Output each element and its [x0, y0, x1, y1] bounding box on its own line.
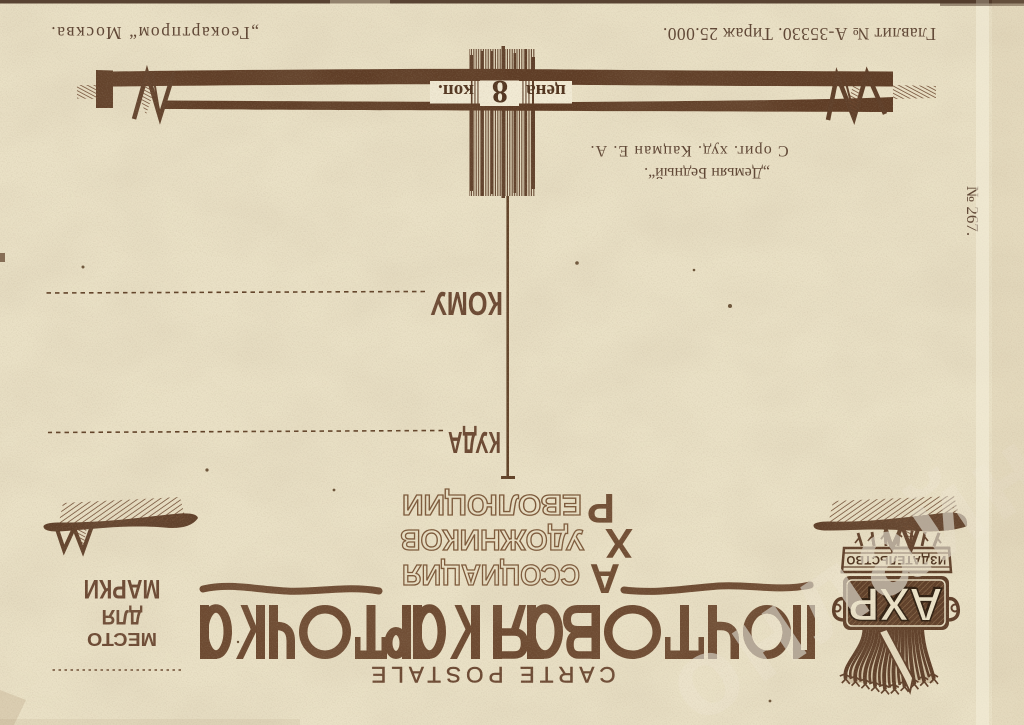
svg-text:Р: Р	[587, 485, 615, 532]
svg-text:„Геокартпром“ Москва.: „Геокартпром“ Москва.	[50, 23, 259, 43]
svg-text:№ 267.: № 267.	[963, 186, 982, 236]
svg-text:ЕВОЛЮЦИИ: ЕВОЛЮЦИИ	[402, 488, 582, 520]
svg-text:МЕСТО: МЕСТО	[87, 629, 157, 649]
svg-text:УДОЖНИКОВ: УДОЖНИКОВ	[400, 523, 584, 555]
svg-text:КУДА: КУДА	[448, 425, 501, 460]
svg-text:МАРКИ: МАРКИ	[84, 574, 161, 604]
svg-text:CARTE POSTALE: CARTE POSTALE	[366, 662, 615, 687]
svg-text:ИЗДАТЕЛЬСТВО: ИЗДАТЕЛЬСТВО	[846, 553, 946, 565]
svg-text:8: 8	[492, 73, 509, 109]
svg-text:КОМУ: КОМУ	[431, 285, 503, 322]
svg-text:коп.: коп.	[438, 80, 474, 101]
svg-text:„Демьян Бедный“.: „Демьян Бедный“.	[644, 164, 770, 181]
svg-text:цена: цена	[526, 80, 566, 101]
svg-text:ДЛЯ: ДЛЯ	[102, 605, 143, 628]
svg-text:АХР: АХР	[849, 578, 943, 631]
svg-text:Главлит № А-35330. Тираж 25.0: Главлит № А-35330. Тираж 25.000.	[663, 24, 936, 44]
svg-text:ССОЦИАЦИЯ: ССОЦИАЦИЯ	[402, 558, 580, 590]
svg-text:С ориг. худ. Кацман Е. А.: С ориг. худ. Кацман Е. А.	[589, 142, 788, 159]
